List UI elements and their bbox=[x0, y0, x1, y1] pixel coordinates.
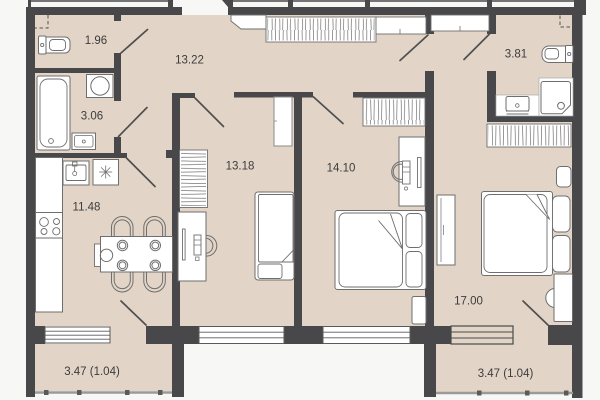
svg-text:3.06: 3.06 bbox=[81, 110, 103, 122]
svg-text:17.00: 17.00 bbox=[454, 296, 483, 308]
svg-text:3.47 (1.04): 3.47 (1.04) bbox=[64, 366, 120, 378]
svg-text:3.47 (1.04): 3.47 (1.04) bbox=[478, 368, 534, 380]
svg-text:13.18: 13.18 bbox=[226, 161, 255, 173]
svg-text:14.10: 14.10 bbox=[327, 163, 356, 175]
svg-text:11.48: 11.48 bbox=[73, 202, 101, 214]
svg-text:13.22: 13.22 bbox=[175, 55, 204, 67]
svg-text:1.96: 1.96 bbox=[85, 35, 107, 47]
svg-text:3.81: 3.81 bbox=[505, 49, 527, 61]
